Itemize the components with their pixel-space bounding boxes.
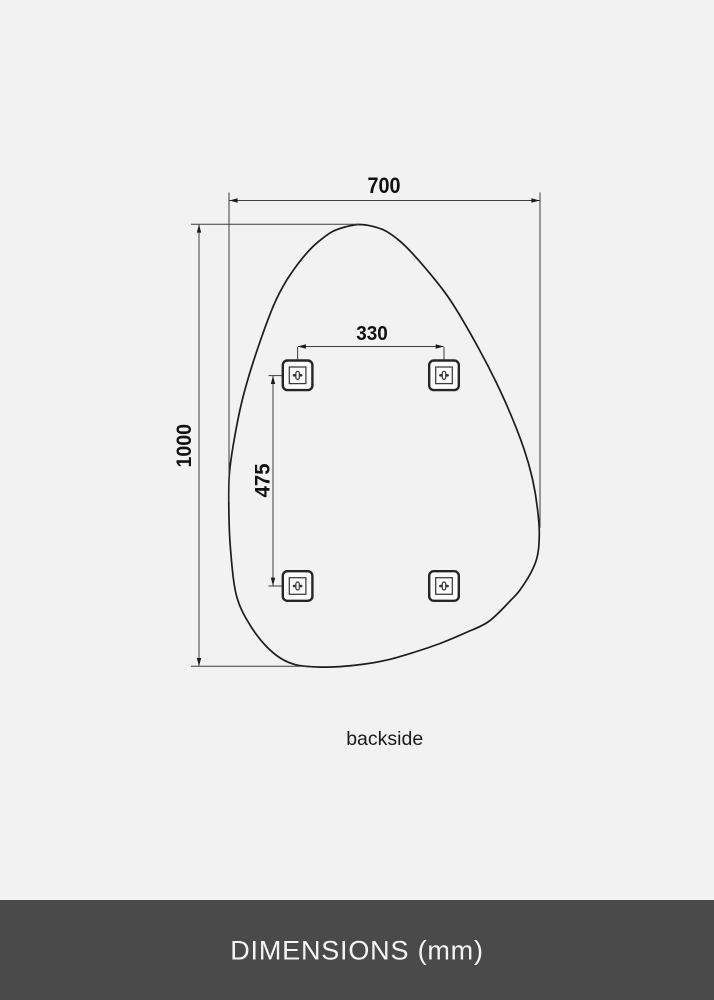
svg-text:backside: backside (346, 728, 423, 750)
svg-text:1000: 1000 (173, 424, 196, 468)
svg-text:DIMENSIONS (mm): DIMENSIONS (mm) (230, 936, 483, 966)
svg-text:330: 330 (356, 322, 388, 345)
svg-text:475: 475 (252, 463, 275, 497)
svg-text:700: 700 (368, 173, 401, 198)
